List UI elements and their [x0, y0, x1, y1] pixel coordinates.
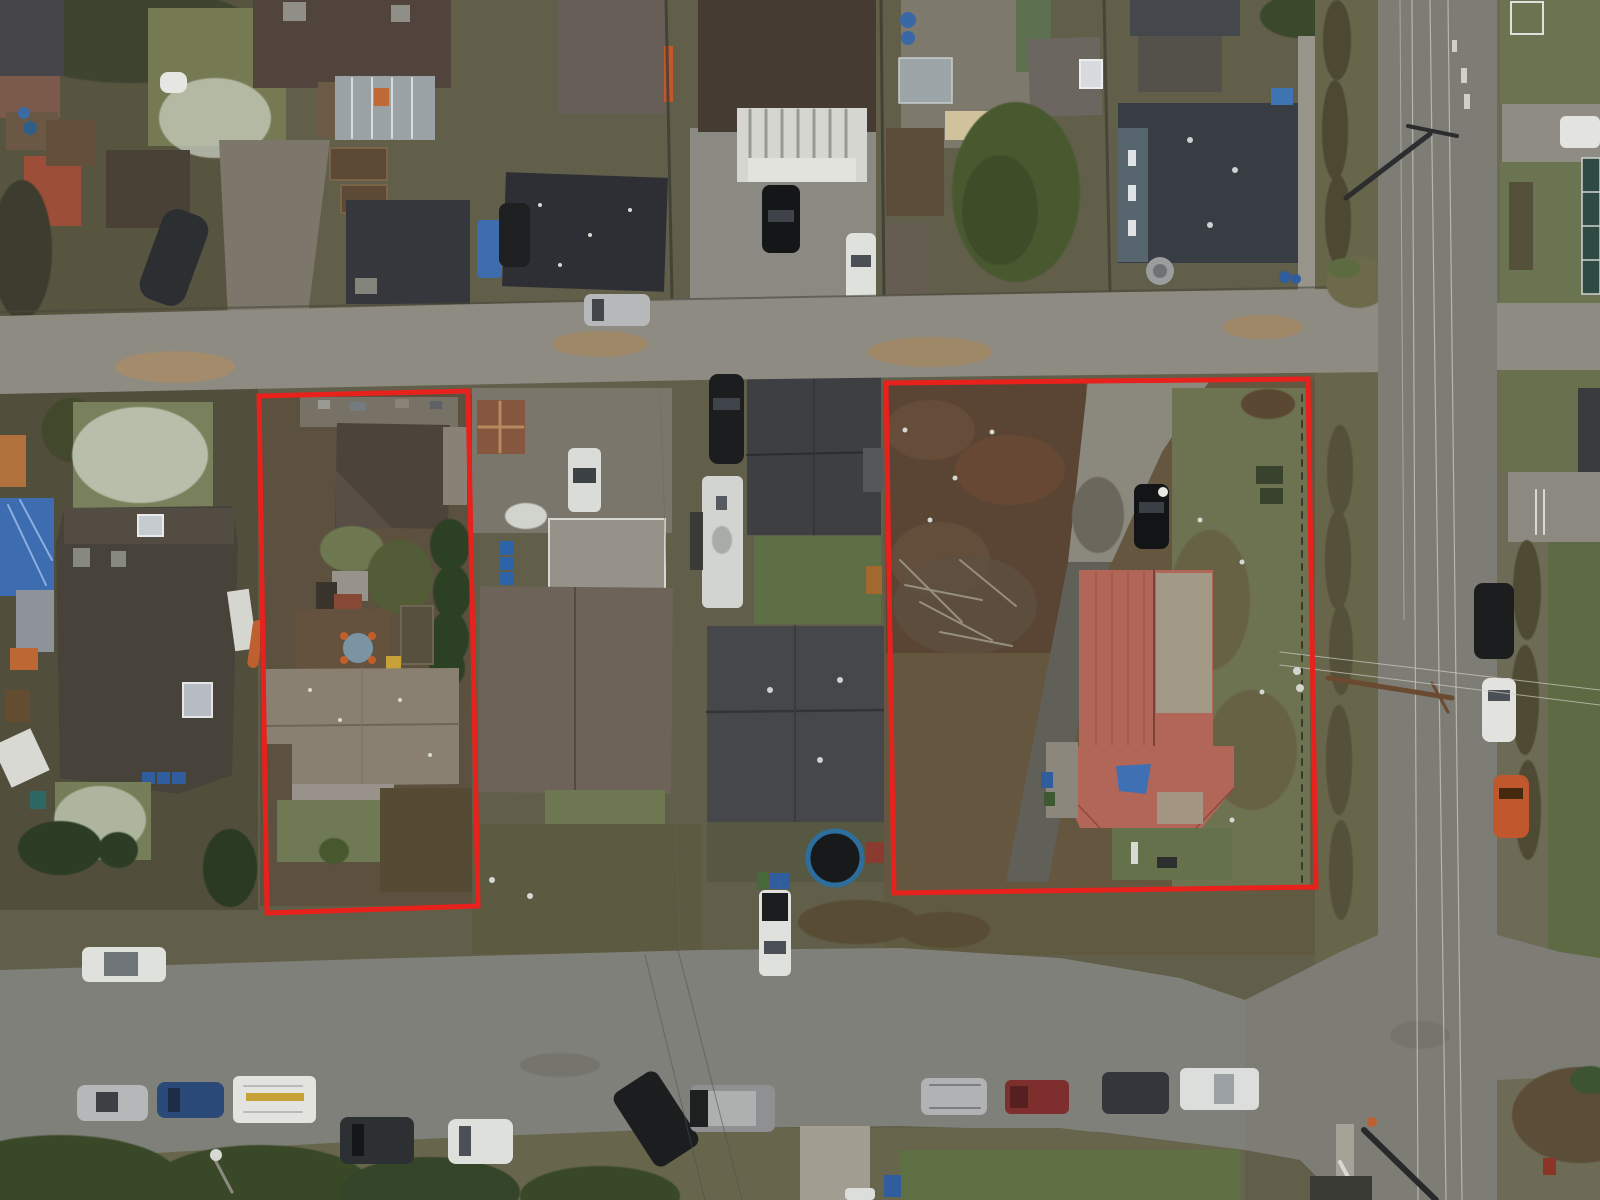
driveway-ne	[1508, 472, 1600, 542]
driveway-wet	[1072, 477, 1124, 553]
skylight	[73, 548, 90, 567]
blue-bin	[1279, 271, 1291, 283]
patio-chair	[340, 656, 348, 664]
patio-chair	[368, 656, 376, 664]
orange-item	[374, 88, 389, 106]
junk-white	[489, 877, 495, 883]
mud-puddle	[868, 337, 992, 367]
street-stain	[1390, 1021, 1450, 1049]
snow-fleck	[1198, 518, 1203, 523]
tarp-blue-car	[477, 220, 502, 278]
car-windshield	[1499, 788, 1523, 799]
lawn	[754, 536, 881, 624]
roof-vent	[817, 757, 823, 763]
road-dash	[1452, 40, 1457, 52]
big-conifer-shade	[962, 155, 1038, 265]
snow-fleck	[338, 718, 342, 722]
blue-bin	[500, 541, 514, 555]
conifer	[18, 821, 102, 875]
snow-fleck	[308, 688, 312, 692]
house-topleft-deck	[0, 76, 60, 118]
lawn	[545, 790, 665, 826]
aerial-photo	[0, 0, 1600, 1200]
shrub-red	[1543, 1158, 1556, 1175]
car-windshield	[851, 255, 871, 267]
house-e-skylight	[1080, 60, 1102, 88]
snow-fleck	[928, 518, 933, 523]
blue-bin	[157, 772, 170, 784]
pole-marker-orange	[1367, 1117, 1377, 1127]
snow-fleck	[628, 208, 632, 212]
roof-vent	[837, 677, 843, 683]
bin-yellow	[386, 656, 401, 669]
car-top-gray	[104, 952, 138, 976]
snow-fleck	[538, 203, 542, 207]
car-windshield	[1139, 502, 1164, 513]
scrub-texture	[955, 435, 1065, 505]
deck-junk	[1138, 36, 1222, 92]
snow-fleck	[1260, 690, 1265, 695]
tarp-small	[1271, 88, 1293, 105]
tarp-orange	[10, 648, 38, 670]
woodpile	[866, 566, 882, 594]
car-windshield	[768, 210, 794, 222]
suv-front-dark	[690, 1090, 708, 1127]
hedge-verge	[1325, 175, 1351, 265]
junk-white	[527, 893, 533, 899]
car-white-road	[1482, 678, 1516, 742]
snow-fleck	[398, 698, 402, 702]
lot1-hedgerow	[430, 519, 470, 571]
car-white-ne	[1560, 116, 1600, 148]
junk-item	[350, 402, 366, 411]
skylight-white	[183, 683, 212, 717]
car-orange-road	[1493, 775, 1529, 838]
garden-bed	[330, 148, 387, 180]
blue-barrel	[900, 12, 916, 28]
truck-windshield	[764, 941, 786, 954]
snow-fleck	[428, 753, 432, 757]
bathtub-white	[160, 72, 187, 93]
junk-item	[395, 399, 409, 408]
car-windshield	[592, 299, 604, 321]
house-f-window	[1128, 185, 1136, 201]
bush-brown	[1241, 389, 1295, 419]
hedge-verge	[1326, 705, 1352, 815]
compost-bin	[1256, 466, 1283, 484]
rv-roof-spot	[712, 526, 732, 554]
mud-puddle	[115, 351, 235, 383]
lot1-tree	[367, 540, 433, 614]
patio-shed	[886, 222, 930, 296]
blue-bin	[780, 873, 790, 889]
snow-fleck	[1230, 818, 1235, 823]
shed-south	[1310, 1176, 1372, 1200]
sunroom-glass	[899, 58, 952, 103]
blue-bin	[1291, 274, 1301, 284]
house-topleft-roof	[0, 0, 64, 76]
ladder-white	[1131, 842, 1138, 864]
snow-fleck	[1240, 560, 1245, 565]
suv-black-road	[1474, 583, 1514, 659]
street-stain	[520, 1053, 600, 1077]
truck-windshield	[573, 468, 596, 483]
garden-boxes	[46, 120, 96, 166]
car-blue-south	[157, 1082, 224, 1118]
hot-tub	[23, 121, 37, 135]
grass-mound-top	[1328, 258, 1360, 278]
house-f-window	[1128, 150, 1136, 166]
blue-bin	[769, 873, 779, 889]
plastic-pile	[505, 503, 547, 529]
skylight	[283, 2, 306, 21]
shed-orange	[0, 435, 26, 487]
junk-item	[318, 400, 330, 409]
suv-silver-south	[921, 1078, 987, 1115]
roof-moss	[1157, 792, 1203, 824]
rv-door	[716, 496, 727, 510]
fence-object	[1293, 667, 1301, 675]
flat-roof-section	[549, 519, 665, 591]
compost-bin	[1260, 488, 1283, 504]
house-ne-roof	[1578, 388, 1600, 472]
leanto-dark	[690, 512, 703, 570]
car-white	[846, 233, 876, 303]
lot1-bush	[319, 838, 349, 864]
snow-fleck	[953, 476, 958, 481]
snow-fleck	[558, 263, 562, 267]
fence-object	[1296, 684, 1304, 692]
hedge-verge	[1323, 0, 1351, 80]
car-white-south	[448, 1119, 513, 1164]
roof-vent	[1187, 137, 1193, 143]
scrub-texture	[885, 400, 975, 460]
car-windshield	[168, 1088, 180, 1112]
verge-e-lawn	[1548, 542, 1600, 962]
bin-green	[757, 872, 768, 889]
suv-black-mid	[709, 374, 744, 464]
camper-white	[845, 1188, 875, 1200]
conifer	[203, 829, 257, 907]
truck-bed-cover	[762, 893, 788, 921]
junk-item	[430, 401, 442, 409]
trampoline	[808, 831, 862, 885]
street-lamp-head	[210, 1149, 222, 1161]
house-f-window	[1128, 220, 1136, 236]
bin-green	[1044, 792, 1055, 806]
house-j-porch	[863, 448, 883, 492]
skylight	[111, 551, 126, 567]
mud-puddle	[552, 331, 648, 357]
blue-bin	[499, 572, 514, 585]
patio-chair	[340, 632, 348, 640]
truck-bed-dark	[1010, 1086, 1028, 1108]
patio-chair	[368, 632, 376, 640]
car-windshield	[713, 398, 740, 410]
hedge-verge	[1513, 540, 1541, 640]
suv-roof-light	[706, 1091, 756, 1126]
hedge-verge	[1322, 80, 1348, 180]
aerial-photo-viewport	[0, 0, 1600, 1200]
house-b-roof	[558, 0, 666, 114]
hedge-verge	[1329, 820, 1353, 920]
hot-tub-round-inner	[1153, 264, 1167, 278]
suv-dark-south-2	[1102, 1072, 1169, 1114]
conifer	[98, 832, 138, 868]
blue-bin	[884, 1175, 901, 1197]
garden-area	[886, 128, 944, 216]
lot1-garden-fence	[401, 606, 433, 664]
hedge-verge	[1327, 425, 1353, 515]
blue-barrel	[18, 107, 30, 119]
lawn-ne	[1500, 0, 1600, 104]
blue-barrel	[901, 31, 915, 45]
garage-skylight	[355, 278, 377, 294]
lot1-scrub-south	[380, 788, 472, 892]
roof-vent	[1207, 222, 1213, 228]
lot1-driveway	[443, 427, 467, 505]
door-mat	[1157, 857, 1177, 868]
snow-fleck	[588, 233, 592, 237]
hedge-l	[1509, 182, 1533, 270]
car-windshield	[352, 1124, 364, 1156]
roof-metal-gray	[16, 590, 54, 652]
van-pipe-yellow	[246, 1093, 304, 1101]
blue-bin	[500, 557, 514, 570]
roof-tarp-blue	[1116, 764, 1151, 794]
white-bag	[1158, 487, 1168, 497]
mud-puddle	[1223, 315, 1303, 339]
lawn-south	[900, 1150, 1240, 1200]
garage-door-white	[748, 158, 856, 182]
crate-junk	[5, 690, 30, 722]
blue-bin	[172, 772, 186, 784]
house-g-roof	[1130, 0, 1240, 36]
car-windshield	[459, 1126, 471, 1156]
snow-fleck	[903, 428, 908, 433]
roof-moss	[1156, 573, 1212, 713]
lot2-lawn-south	[1112, 828, 1232, 880]
scrub-mid-south	[472, 824, 702, 954]
skylight	[391, 5, 410, 22]
lot1-hedgerow	[433, 565, 471, 619]
roof-vent	[767, 687, 773, 693]
pergola-glass	[335, 76, 435, 140]
road-dash	[1461, 68, 1467, 83]
truck-cab-detail	[1214, 1074, 1234, 1104]
car-sunroof	[96, 1092, 118, 1112]
alley-east-arm	[1497, 303, 1600, 370]
lot1-planter-red	[334, 594, 362, 610]
lot1-shed	[316, 582, 337, 610]
hedge-street-north	[900, 912, 990, 948]
hedge-verge	[1325, 510, 1351, 610]
skylight-white	[138, 515, 163, 536]
roof-vent	[1232, 167, 1238, 173]
lot1-porch-path	[292, 784, 394, 802]
snow-fleck	[990, 430, 995, 435]
house-a-roof	[253, 0, 451, 88]
suv-black	[499, 203, 530, 267]
hedge-street-north	[798, 900, 918, 944]
blue-bin	[1041, 772, 1053, 788]
bin-teal	[30, 791, 46, 809]
road-dash	[1464, 94, 1470, 109]
snow-patch	[72, 407, 208, 503]
suv-dark-south	[340, 1117, 414, 1164]
